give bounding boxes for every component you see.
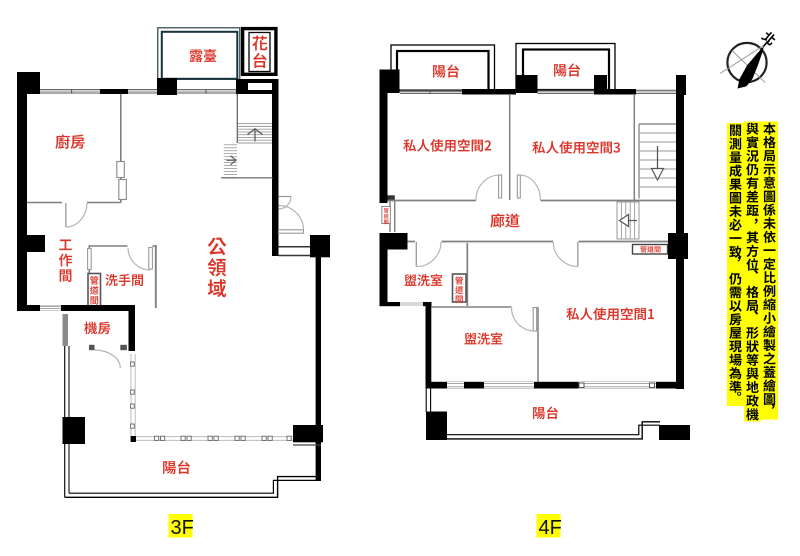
svg-text:4F: 4F: [539, 517, 562, 539]
svg-text:3F: 3F: [171, 517, 194, 539]
